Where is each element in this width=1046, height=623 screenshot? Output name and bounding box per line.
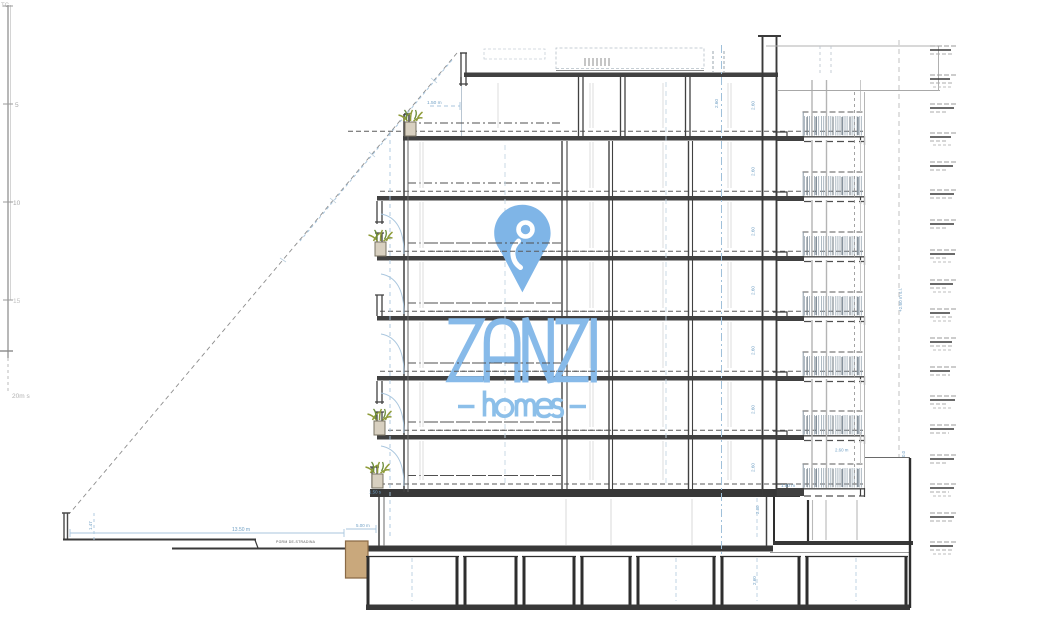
svg-text:2.60: 2.60 [751, 167, 756, 176]
svg-text:2.60: 2.60 [751, 346, 756, 355]
svg-text:2.60: 2.60 [714, 99, 719, 108]
svg-text:2.60: 2.60 [752, 576, 757, 585]
svg-text:2.60: 2.60 [751, 463, 756, 472]
svg-text:1.50 s: 1.50 s [369, 490, 382, 495]
svg-text:1.50 m: 1.50 m [427, 100, 442, 106]
svg-text:+2.60 m s.l.: +2.60 m s.l. [898, 288, 903, 312]
svg-text:10: 10 [13, 200, 21, 207]
svg-text:5: 5 [15, 102, 19, 109]
svg-text:20m s: 20m s [12, 393, 30, 400]
svg-text:1.50 m: 1.50 m [781, 483, 795, 488]
svg-text:2.60: 2.60 [751, 405, 756, 414]
svg-text:15: 15 [13, 298, 21, 305]
svg-text:PGRM DE-STRADINA: PGRM DE-STRADINA [276, 540, 316, 544]
svg-text:5.00 m: 5.00 m [356, 523, 370, 528]
svg-text:2.60: 2.60 [755, 505, 760, 514]
svg-text:13.50 m: 13.50 m [232, 527, 250, 533]
svg-text:2.60: 2.60 [751, 227, 756, 236]
svg-text:1.47: 1.47 [88, 521, 93, 530]
svg-text:2.60: 2.60 [751, 286, 756, 295]
svg-text:2.60: 2.60 [751, 101, 756, 110]
svg-text:0.0: 0.0 [901, 450, 906, 457]
svg-text:2.60 m: 2.60 m [835, 448, 849, 453]
